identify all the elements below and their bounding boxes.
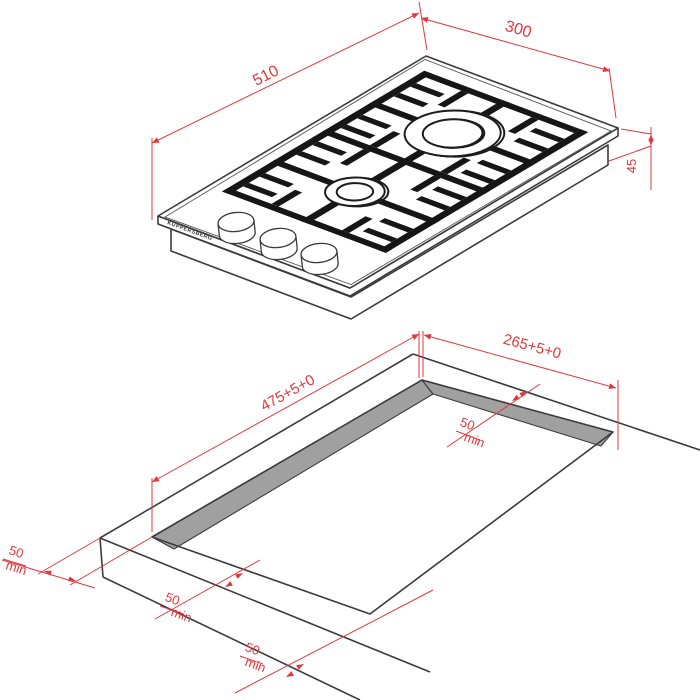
dimension-cutout-length: 475+5+0 [152, 331, 419, 532]
countertop-cutout-view: 475+5+0 265+5+0 50 min 50 min [2, 331, 700, 700]
technical-drawing-page: KUPPERSBERG 510 300 45 [0, 0, 700, 700]
hob-isometric-view: KUPPERSBERG 510 300 45 [152, 2, 654, 319]
clearance-left-unit: min [4, 557, 29, 578]
dim-45-label: 45 [624, 159, 639, 173]
clearance-front-unit: min [169, 604, 194, 625]
dim-475-label: 475+5+0 [258, 371, 318, 415]
clearance-right-unit: min [462, 429, 487, 450]
dim-265-label: 265+5+0 [501, 331, 563, 363]
knob-2 [259, 227, 298, 262]
knob-1 [217, 211, 256, 246]
hob-installation-diagram: KUPPERSBERG 510 300 45 [0, 0, 700, 700]
dim-510-label: 510 [250, 62, 282, 89]
dim-300-label: 300 [503, 18, 533, 42]
knob-3 [300, 242, 339, 277]
clearance-front-edge-unit: min [243, 654, 268, 675]
cutout-wall-left [152, 380, 433, 549]
clearance-left: 50 min [2, 537, 152, 588]
cutout-wall-right [422, 380, 613, 446]
